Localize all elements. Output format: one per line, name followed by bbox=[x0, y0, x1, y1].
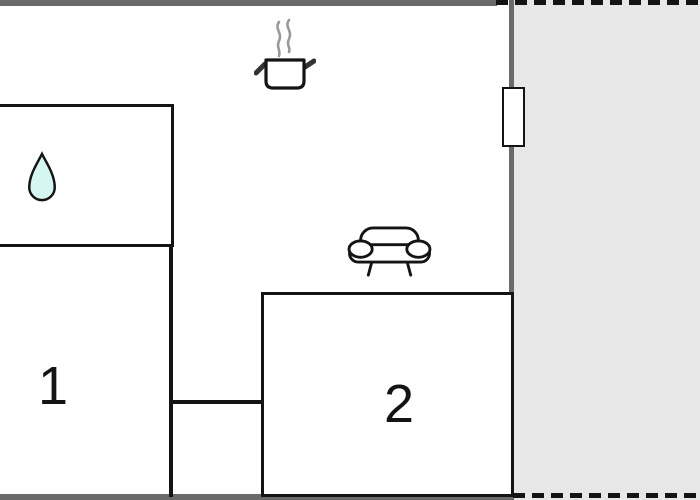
interior-wall-horizontal bbox=[169, 400, 265, 404]
cooking-pot-icon bbox=[254, 16, 316, 97]
window-icon bbox=[502, 87, 525, 147]
floor-plan: 1 2 bbox=[0, 0, 700, 500]
sofa-icon bbox=[347, 225, 432, 282]
exterior-wall-right bbox=[509, 0, 514, 296]
room-1-label: 1 bbox=[21, 356, 85, 416]
terrace-area bbox=[513, 0, 700, 500]
interior-wall-vertical bbox=[169, 244, 173, 497]
water-drop-icon bbox=[25, 151, 59, 209]
exterior-wall-top bbox=[0, 0, 497, 6]
terrace-dashed-border-top bbox=[496, 0, 700, 5]
room-2-label: 2 bbox=[367, 374, 431, 434]
terrace-dashed-border-bottom bbox=[513, 493, 700, 498]
steam-icon bbox=[277, 20, 290, 56]
